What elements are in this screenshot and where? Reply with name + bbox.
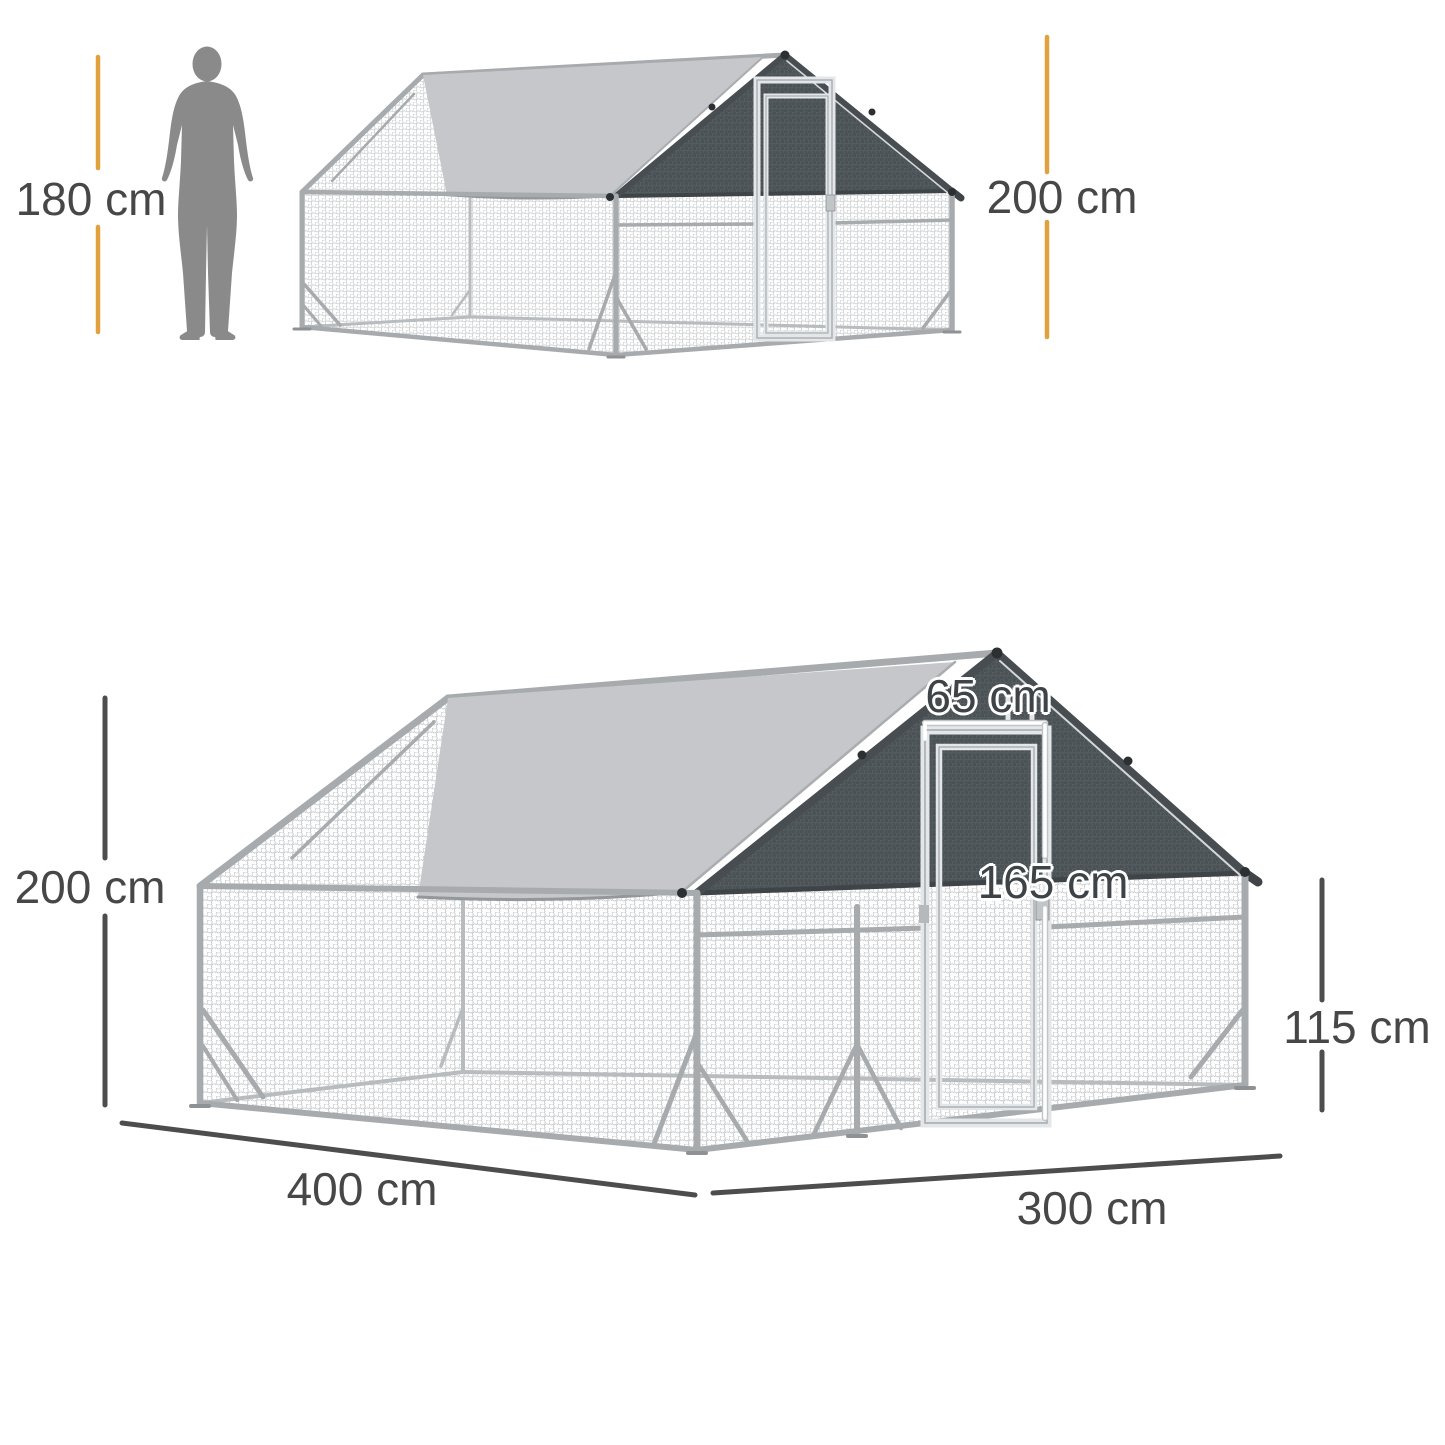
product-dimension-diagram: 180 cm 200 cm 200 cm 65 cm 165 cm 115 cm…: [0, 0, 1445, 1445]
diagram-drawing: [0, 0, 1445, 1445]
door-hinge: [919, 905, 929, 923]
length-label: 400 cm: [287, 1166, 438, 1212]
human-height-label: 180 cm: [16, 176, 167, 222]
width-label: 300 cm: [1017, 1185, 1168, 1231]
bottom-total-height-label: 200 cm: [15, 864, 166, 910]
side-wall-height-label: 115 cm: [1283, 1004, 1430, 1050]
door-height-label: 165 cm: [978, 859, 1129, 905]
top-figure-cage: [294, 51, 961, 358]
door-latch: [826, 195, 835, 211]
human-silhouette-icon: [162, 47, 253, 341]
door-width-label: 65 cm: [925, 673, 1050, 719]
top-total-height-label: 200 cm: [987, 174, 1138, 220]
width-dimension-line: [713, 1156, 1280, 1193]
